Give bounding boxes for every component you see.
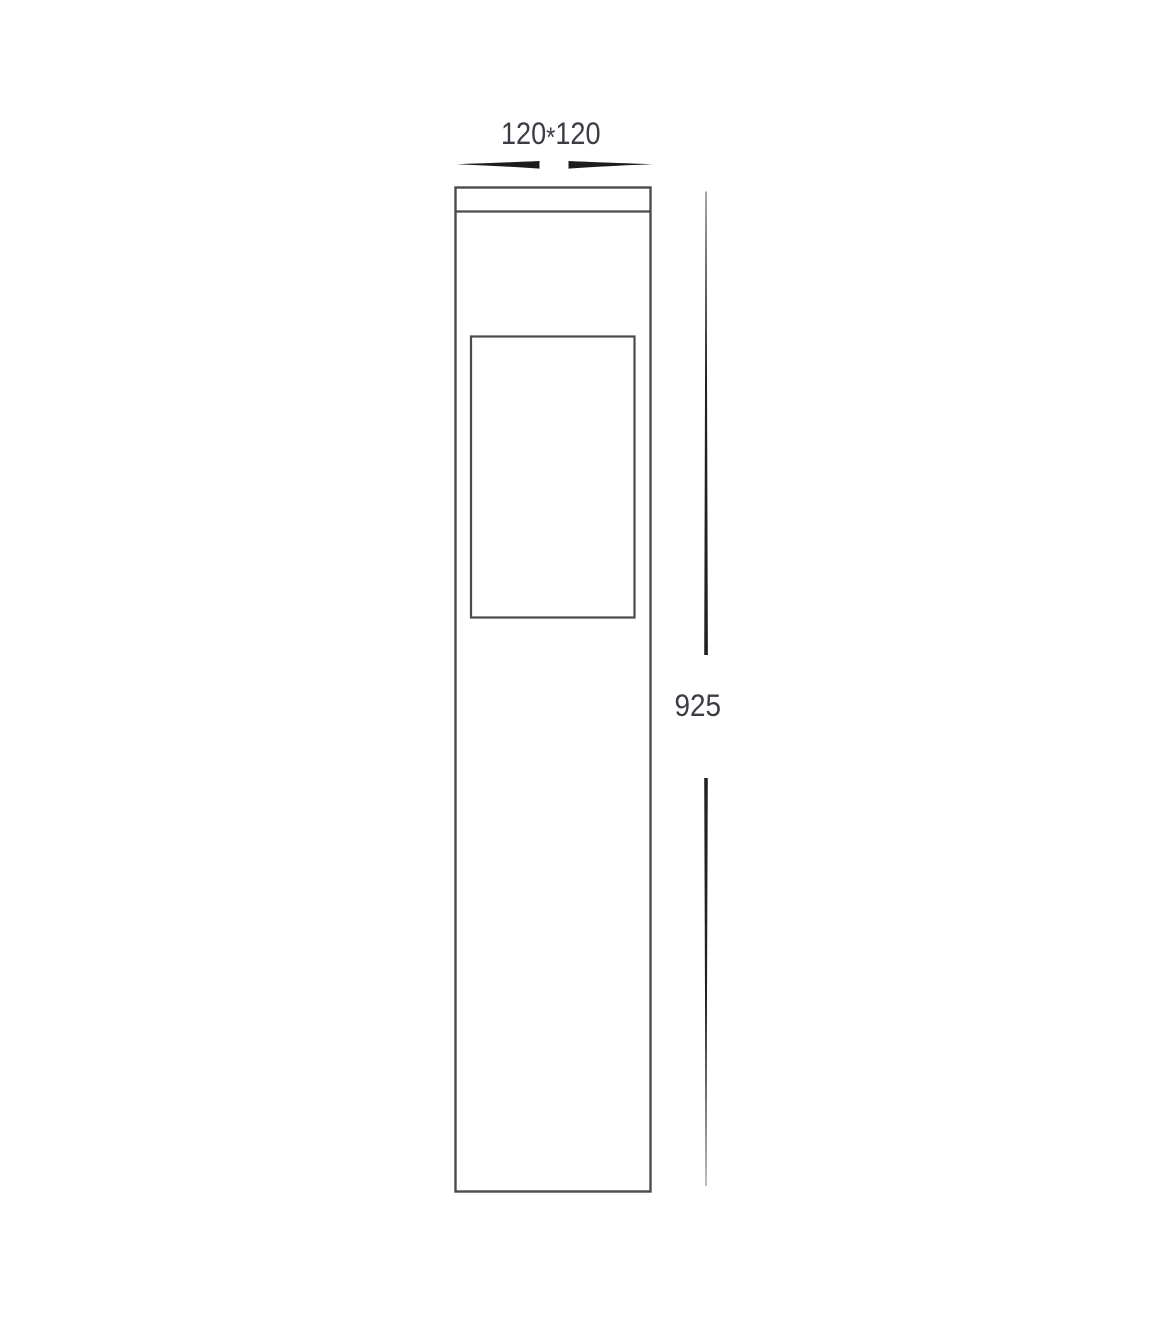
svg-text:120*120: 120*120: [501, 115, 601, 152]
svg-text:925: 925: [675, 687, 722, 723]
